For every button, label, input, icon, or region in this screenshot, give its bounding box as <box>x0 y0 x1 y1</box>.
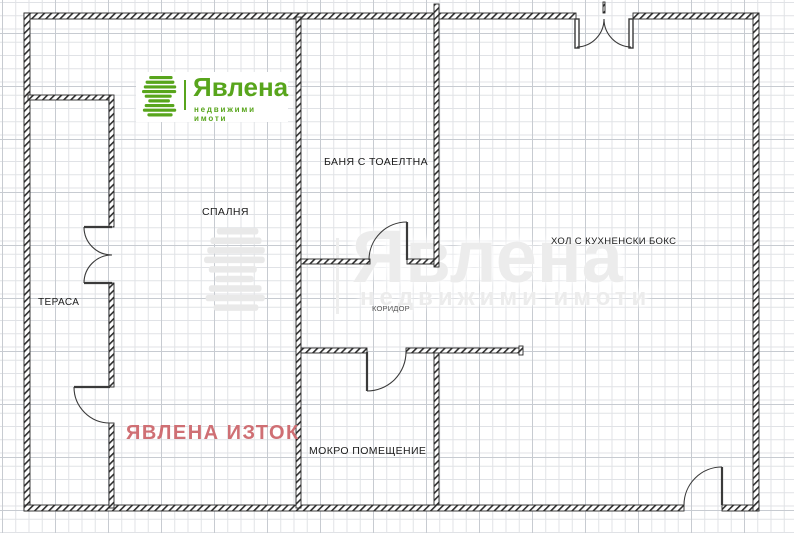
wall-segment <box>28 95 112 100</box>
double-door-terrace <box>84 227 112 283</box>
logo-tagline: недвижими имоти <box>194 105 288 123</box>
floor-plan: Явлена недвижими имоти <box>0 0 794 533</box>
room-label-corridor: КОРИДОР <box>372 304 410 313</box>
window-living-room <box>575 19 633 48</box>
yavlena-logo: Явлена недвижими имоти <box>136 72 288 122</box>
yavlena-stripes-icon <box>142 76 178 117</box>
wall-segment <box>109 283 114 387</box>
room-label-living-room: ХОЛ С КУХНЕНСКИ БОКС <box>551 236 676 247</box>
door-wet-room <box>367 352 406 391</box>
wall-segment <box>753 13 759 511</box>
wall-segment <box>633 13 759 19</box>
wall-segment <box>519 346 523 355</box>
logo-brand-name: Явлена <box>193 73 288 102</box>
wall-segment <box>301 259 370 264</box>
room-label-bedroom: СПАЛНЯ <box>202 206 249 218</box>
wall-segment <box>434 4 439 267</box>
wall-segment <box>301 348 367 353</box>
door-bathroom <box>369 222 407 260</box>
wall-segment <box>24 13 30 511</box>
wall-segment <box>406 348 521 353</box>
wall-segment <box>434 353 439 505</box>
wall-segment <box>109 95 114 227</box>
room-label-terrace: ТЕРАСА <box>38 297 79 308</box>
room-label-bathroom: БАНЯ С ТОАЕЛТНА <box>324 156 428 168</box>
wall-segment <box>109 423 114 508</box>
room-label-wet-room: МОКРО ПОМЕЩЕНИЕ <box>309 445 426 457</box>
wall-segment <box>603 2 605 13</box>
office-stamp-text: ЯВЛЕНА ИЗТОК <box>126 422 300 445</box>
logo-divider <box>184 80 186 110</box>
wall-segment <box>407 259 434 264</box>
door-terrace-lower <box>74 387 110 423</box>
door-entrance <box>684 467 722 505</box>
wall-segment <box>24 505 684 511</box>
